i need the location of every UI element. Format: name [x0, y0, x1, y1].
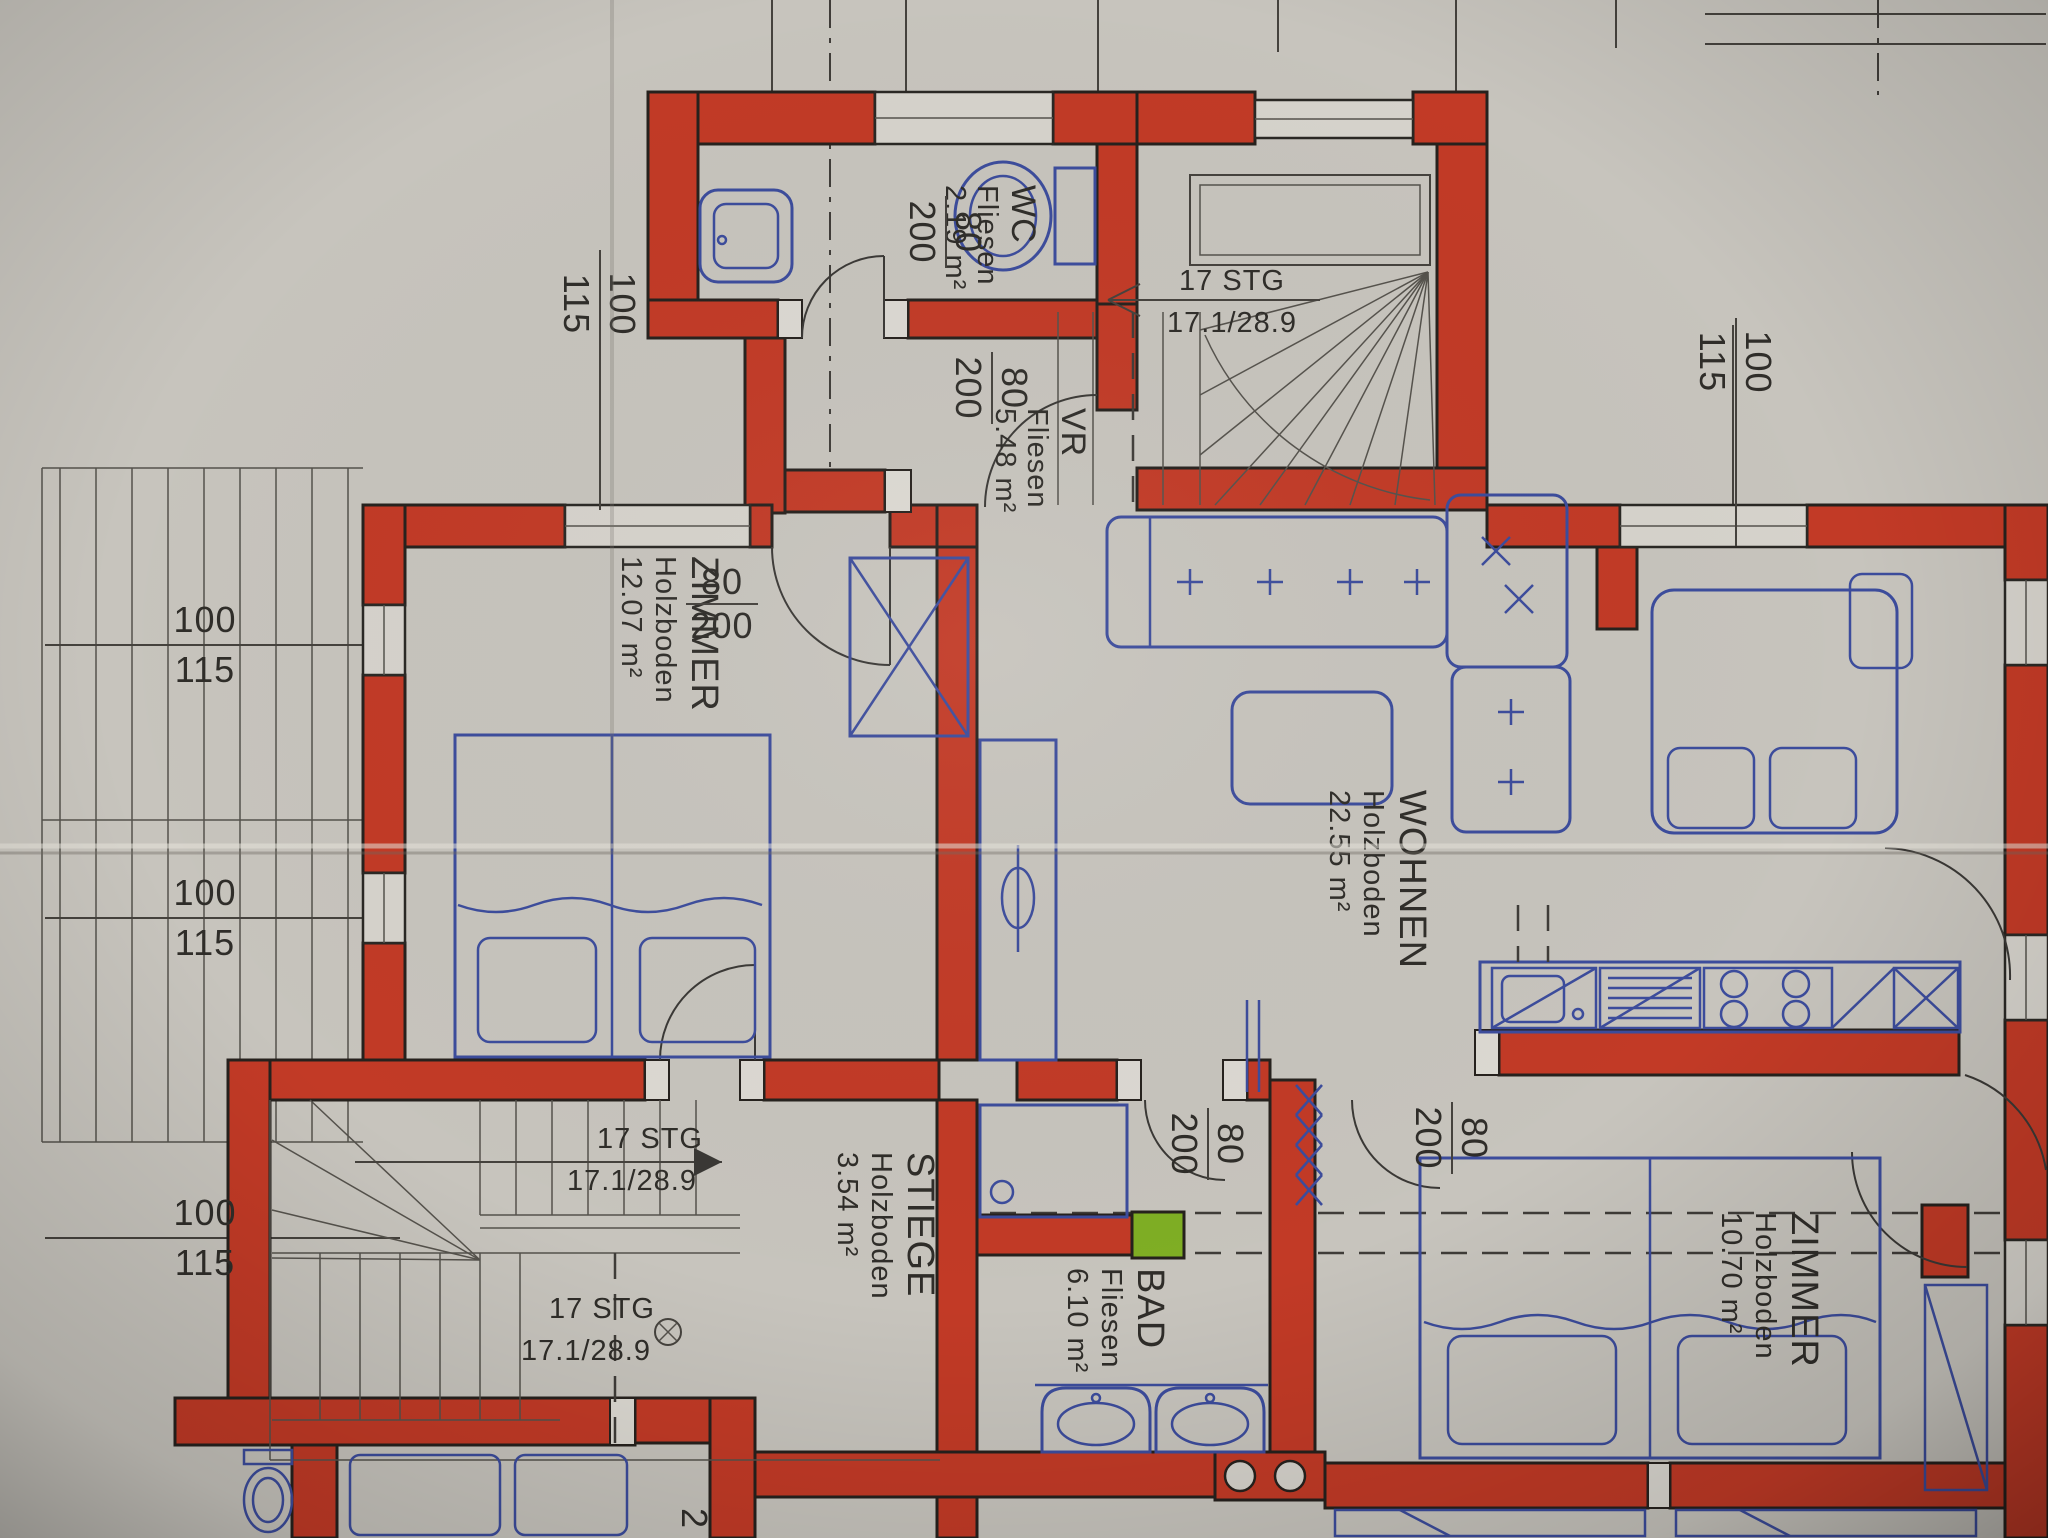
- floor-plan-photo: WC Fliesen 2.19 m² VR Fliesen 5.48 m² ZI…: [0, 0, 2048, 1538]
- floor-plan-drawing: WC Fliesen 2.19 m² VR Fliesen 5.48 m² ZI…: [0, 0, 2048, 1538]
- photo-artifacts: [0, 0, 2048, 1538]
